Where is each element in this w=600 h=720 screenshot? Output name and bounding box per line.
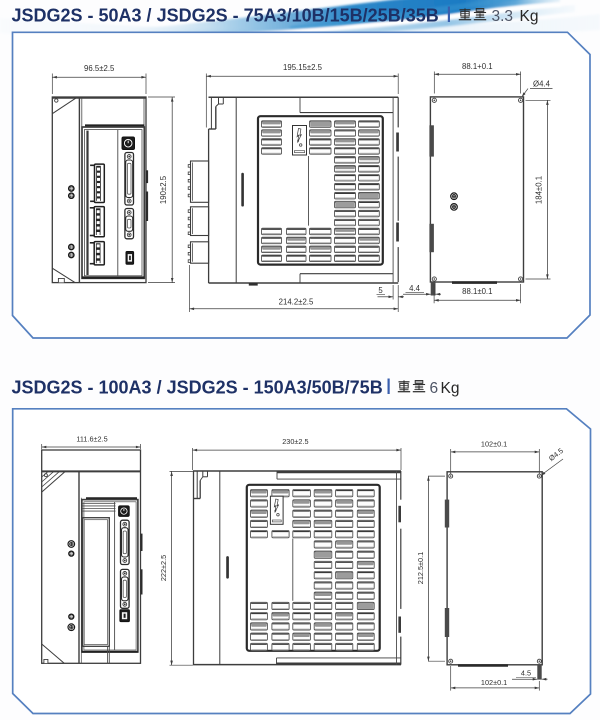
svg-text:Ø4.4: Ø4.4 [533, 80, 551, 89]
svg-text:212.5±0.1: 212.5±0.1 [416, 552, 425, 584]
svg-text:JSDG2S - 100A3 / JSDG2S - 150A: JSDG2S - 100A3 / JSDG2S - 150A3/50B/75B [12, 378, 383, 398]
svg-text:111.6±2.5: 111.6±2.5 [76, 435, 107, 444]
svg-text:6: 6 [430, 380, 439, 397]
svg-text:Kg: Kg [441, 380, 460, 397]
svg-text:230±2.5: 230±2.5 [282, 437, 308, 446]
svg-text:Kg: Kg [520, 8, 539, 25]
svg-text:88.1±0.1: 88.1±0.1 [462, 287, 492, 296]
svg-text:102±0.1: 102±0.1 [481, 440, 507, 449]
svg-text:5: 5 [378, 286, 383, 295]
svg-text:4.4: 4.4 [409, 284, 421, 293]
svg-text:102±0.1: 102±0.1 [481, 678, 507, 687]
svg-text:88.1+0.1: 88.1+0.1 [462, 62, 493, 71]
svg-text:4.5: 4.5 [521, 669, 531, 678]
svg-text:190±2.5: 190±2.5 [159, 175, 168, 204]
svg-text:184±0.1: 184±0.1 [535, 176, 544, 204]
svg-text:222±2.5: 222±2.5 [159, 555, 168, 581]
svg-text:3.3: 3.3 [492, 8, 514, 25]
svg-text:195.15±2.5: 195.15±2.5 [283, 63, 323, 72]
svg-text:214.2±2.5: 214.2±2.5 [279, 298, 314, 307]
svg-text:96.5±2.5: 96.5±2.5 [84, 64, 115, 73]
svg-text:JSDG2S - 50A3 / JSDG2S - 75A3/: JSDG2S - 50A3 / JSDG2S - 75A3/10B/15B/25… [12, 6, 439, 26]
